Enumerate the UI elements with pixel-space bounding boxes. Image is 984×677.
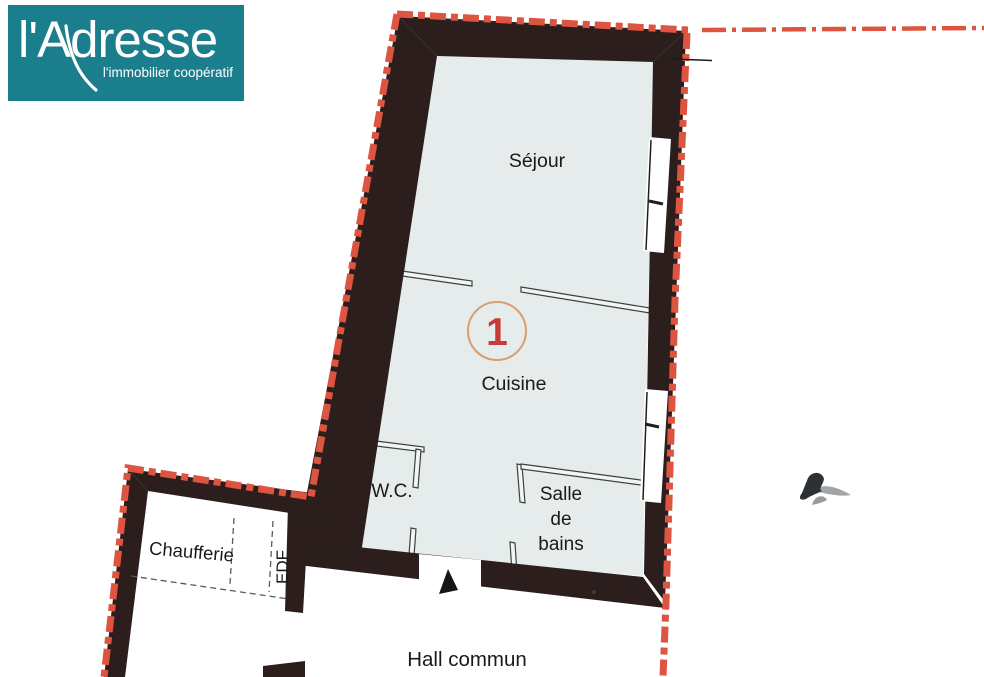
- room-label-chaufferie: Chaufferie: [148, 537, 235, 565]
- boundary-top-extension: [702, 28, 984, 30]
- logo-tagline: l'immobilier coopératif: [103, 65, 233, 80]
- agency-logo: l'Adresse l'immobilier coopératif: [8, 5, 244, 101]
- room-label-cuisine: Cuisine: [481, 373, 546, 395]
- room-label-edf: EDF: [273, 550, 292, 584]
- wall-hall-corner: [263, 661, 305, 677]
- logo-brand-text: l'Adresse: [18, 11, 217, 68]
- scanned-floor-plan-page: 1 Séjour Cuisine W.C. Salle de bains Cha…: [0, 0, 984, 677]
- room-label-sejour: Séjour: [509, 150, 566, 172]
- dashed-divider-bottom: [131, 576, 289, 599]
- room-label-bains-line2: de: [550, 509, 571, 530]
- room-label-bains-line1: Salle: [540, 484, 582, 505]
- room-label-wc: W.C.: [371, 481, 412, 502]
- smudge-tail: [812, 496, 827, 505]
- floor-plan-svg: 1 Séjour Cuisine W.C. Salle de bains Cha…: [0, 0, 984, 677]
- scan-speck: [592, 590, 596, 594]
- smudge-wing: [819, 486, 851, 495]
- room-label-bains-line3: bains: [538, 534, 583, 555]
- scan-smudge-artifact: [800, 473, 851, 505]
- room-label-hall-commun: Hall commun: [407, 648, 527, 671]
- smudge-body: [800, 473, 824, 500]
- unit-number-text: 1: [486, 311, 508, 354]
